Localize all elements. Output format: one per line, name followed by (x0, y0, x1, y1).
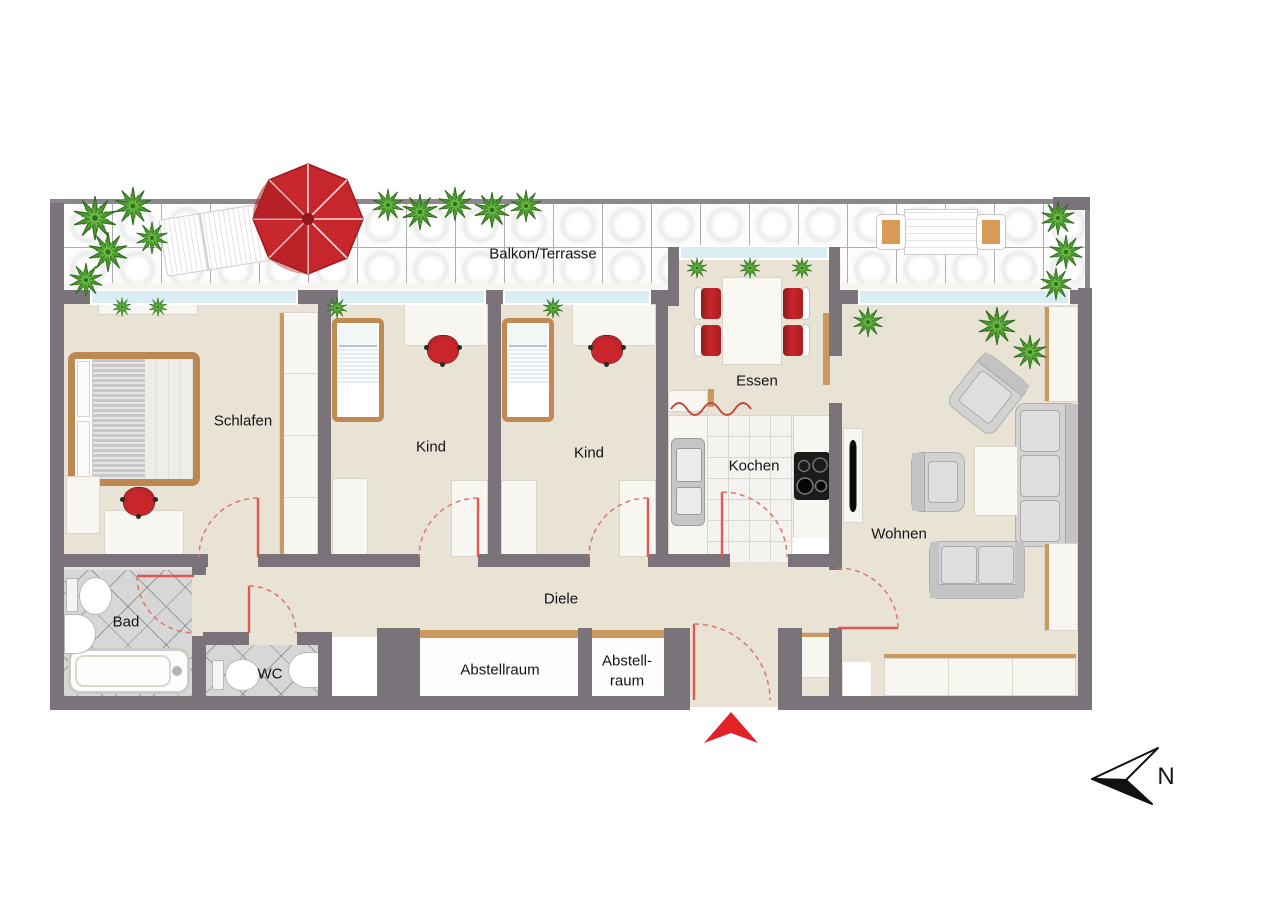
dining-sideboard (668, 390, 708, 412)
label-north: N (1157, 763, 1174, 791)
toilet-icon (79, 577, 112, 615)
child2-wardrobe (619, 480, 656, 557)
loveseat (930, 542, 1024, 598)
wall (64, 290, 90, 304)
child-bed (502, 318, 554, 422)
toilet-icon (212, 660, 224, 690)
wall (192, 636, 206, 696)
floorplan-canvas: Balkon/Terrasse Schlafen Kind Kind Essen… (0, 0, 1280, 905)
wall (50, 203, 64, 710)
dining-chair (694, 323, 721, 358)
decor-vase-icon (850, 440, 857, 512)
balcony-edge (50, 199, 1090, 204)
bed-pillow (339, 325, 377, 347)
double-bed (68, 352, 200, 486)
wall (838, 290, 858, 304)
label-wc: WC (258, 666, 283, 683)
wall (829, 304, 842, 356)
wall (829, 403, 842, 570)
coffee-table (974, 446, 1018, 516)
label-kind2: Kind (574, 445, 604, 462)
bathtub-icon (68, 648, 190, 694)
wall (1078, 288, 1092, 710)
wall (664, 628, 690, 696)
kitchen-floor (708, 415, 793, 562)
storage2-shelf (592, 630, 664, 638)
living-sideboard-bottom (884, 658, 1076, 696)
desk-chair (592, 336, 622, 363)
toilet-icon (66, 578, 78, 612)
dining-chair (783, 286, 810, 321)
balcony-chair (976, 214, 1006, 250)
window (338, 289, 486, 305)
wall-niche (793, 538, 829, 554)
wall (578, 628, 592, 696)
child2-wardrobe (501, 480, 537, 557)
balcony-table (904, 209, 978, 255)
wall (656, 304, 668, 556)
wall (318, 632, 332, 696)
label-diele: Diele (544, 591, 578, 608)
child1-wardrobe (451, 480, 488, 557)
bed-pillow (509, 325, 547, 347)
bed-blanket (93, 359, 145, 479)
desk-chair (428, 336, 458, 363)
label-abstellraum2-line1: Abstell- (602, 653, 652, 670)
wall (829, 247, 840, 306)
wall (318, 304, 331, 556)
wall (64, 554, 208, 567)
window (503, 289, 651, 305)
entry-threshold (690, 696, 778, 707)
window (858, 289, 1070, 305)
wall-niche (332, 637, 377, 696)
label-essen: Essen (736, 373, 778, 390)
wall (668, 247, 679, 306)
wall (478, 554, 590, 567)
bed-pillows (75, 359, 93, 479)
entry-arrow-icon (704, 712, 758, 743)
label-balcony: Balkon/Terrasse (489, 246, 597, 263)
wall-niche (843, 662, 871, 696)
label-abstellraum2-line2: raum (610, 673, 644, 690)
wall (486, 290, 503, 304)
living-cabinet-top (1044, 306, 1078, 402)
balcony-edge (1085, 199, 1090, 292)
bedroom-wardrobe (279, 312, 318, 557)
stove-icon (794, 452, 830, 500)
wall (778, 628, 802, 696)
child-bed (332, 318, 384, 422)
wall (651, 290, 669, 304)
dining-chair (783, 323, 810, 358)
toilet-icon (225, 659, 260, 691)
dining-table (722, 277, 782, 365)
label-wohnen: Wohnen (871, 526, 927, 543)
label-kind1: Kind (416, 439, 446, 456)
living-cabinet-right (1044, 543, 1078, 631)
balcony-chair (876, 214, 906, 250)
bed-blanket (337, 347, 379, 385)
desk-chair (124, 488, 154, 515)
bed-blanket (507, 347, 549, 385)
child1-wardrobe (332, 478, 368, 557)
north-arrow-icon (1092, 748, 1158, 804)
wall (203, 632, 249, 645)
dining-sideboard-wood (708, 389, 714, 407)
wall (298, 290, 338, 304)
wall (488, 304, 501, 556)
wall (1053, 197, 1090, 210)
wall (778, 696, 1092, 710)
label-bad: Bad (113, 614, 140, 631)
armchair (912, 453, 964, 511)
wall (192, 567, 206, 575)
storage1-shelf (420, 630, 578, 638)
label-kochen: Kochen (729, 458, 780, 475)
wall (258, 554, 420, 567)
sofa-three-seat (1016, 404, 1078, 546)
wall (377, 628, 420, 696)
bedroom-desk (104, 510, 184, 556)
kitchen-sink (671, 438, 705, 526)
wall (829, 628, 842, 696)
bed-quilt (145, 359, 193, 479)
label-abstellraum: Abstellraum (460, 662, 539, 679)
bedroom-dresser (66, 476, 100, 534)
living-sideboard-left (843, 428, 863, 523)
wall (50, 696, 690, 710)
sink-icon (288, 652, 320, 688)
label-schlafen: Schlafen (214, 413, 272, 430)
bay-window (679, 245, 829, 260)
wall (648, 554, 730, 567)
window (90, 289, 298, 305)
dining-chair (694, 286, 721, 321)
